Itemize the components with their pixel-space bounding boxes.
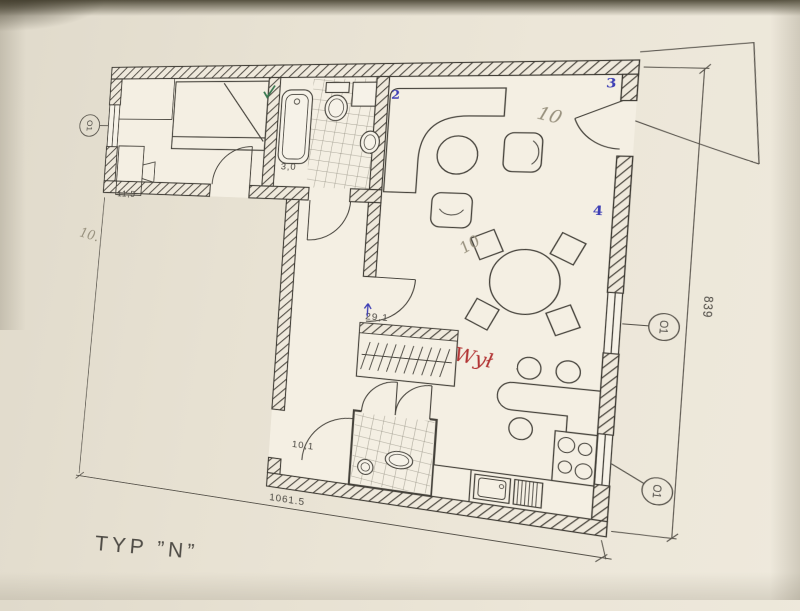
photo-left-shadow: [0, 0, 26, 330]
living-area-label: 29,1: [365, 311, 389, 323]
bathroom-area-label: 3,0: [280, 161, 296, 172]
wall-east-a: [621, 74, 639, 100]
photo-top-shadow: [0, 0, 800, 16]
wall-south-middle: [249, 185, 309, 200]
cooktop-symbol: [552, 431, 598, 486]
bedroom-area-label: 11,5: [117, 189, 136, 199]
right-dimension-label: 839: [699, 296, 716, 319]
blue-mark-2: 2: [391, 87, 401, 102]
wall-south-bath: [350, 189, 382, 203]
window-tag-right-middle-label: O1: [657, 320, 671, 335]
window-tag-right-bottom: O1: [609, 464, 674, 507]
kitchen-drainer-symbol: [513, 479, 543, 508]
floor-plan-drawing: 11,5 3,0 29,1 10,1 1061.5 839 O1 O1 O1: [52, 26, 786, 606]
blue-mark-3: 3: [606, 75, 617, 91]
pencil-note-margin: 10.: [78, 225, 101, 245]
wall-west-upper: [109, 79, 122, 105]
kitchen-sink-symbol: [473, 474, 510, 503]
floor-plan-svg: 11,5 3,0 29,1 10,1 1061.5 839 O1 O1 O1: [52, 26, 786, 606]
plan-type-title: TYP ”N”: [94, 532, 199, 565]
bathtub-symbol: [278, 90, 314, 164]
wall-wing-west-lower: [267, 457, 281, 474]
window-tag-right-bottom-label: O1: [650, 484, 664, 500]
balcony-outline: [632, 42, 767, 164]
window-tag-left: O1: [79, 115, 109, 137]
photographed-floor-plan-page: { "document": { "type_label": "TYP \u201…: [0, 0, 800, 600]
blue-mark-4: 4: [592, 202, 603, 218]
washer-symbol: [352, 82, 377, 106]
window-tag-left-label: O1: [85, 120, 94, 131]
window-tag-right-middle: O1: [621, 311, 680, 342]
